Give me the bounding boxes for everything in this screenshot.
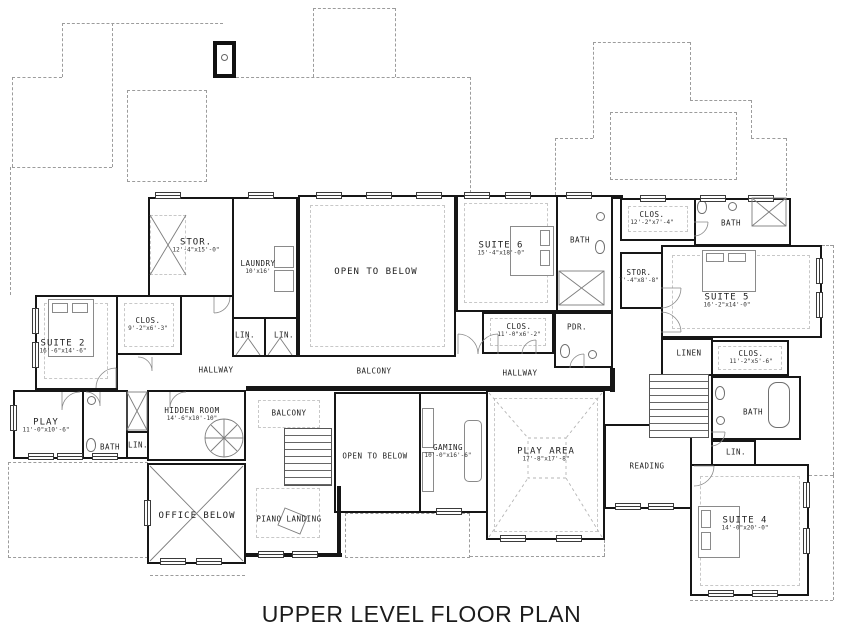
label-clos-suite-2: CLOS. 9'-2"x6'-3" — [128, 317, 168, 333]
label-laundry: LAUNDRY 10'x16' — [240, 260, 275, 276]
label-clos-top-right: CLOS. 12'-2"x7'-4" — [630, 211, 673, 227]
floor-plan-canvas: SUITE 2 16'-6"x14'-6" CLOS. 9'-2"x6'-3" … — [0, 0, 843, 632]
room-dims: 10'-0"x16'-6" — [425, 453, 472, 460]
label-balcony-top: BALCONY — [356, 368, 391, 377]
room-name: BALCONY — [356, 368, 391, 377]
label-bath-right: BATH — [743, 409, 763, 418]
label-suite-2: SUITE 2 16'-6"x14'-6" — [40, 338, 87, 355]
label-suite-5: SUITE 5 16'-2"x14'-0" — [704, 292, 751, 309]
label-stor-right: STOR. 7'-4"x8'-8" — [619, 269, 659, 285]
label-play: PLAY 11'-0"x10'-6" — [23, 417, 70, 434]
room-name: BALCONY — [271, 410, 306, 419]
label-open-to-below-bottom: OPEN TO BELOW — [342, 453, 407, 462]
label-clos-suite-6: CLOS. 11'-0"x6'-2" — [497, 323, 540, 339]
room-dims: 17'-8"x17'-8" — [517, 457, 575, 464]
room-dims: 7'-4"x8'-8" — [619, 278, 659, 285]
label-gaming: GAMING 10'-0"x16'-6" — [425, 444, 472, 460]
room-dims: 11'-0"x6'-2" — [497, 332, 540, 339]
room-name: LIN. — [726, 449, 746, 458]
label-play-area: PLAY AREA 17'-8"x17'-8" — [517, 446, 575, 463]
room-name: OFFICE BELOW — [158, 511, 235, 521]
room-name: LIN. — [235, 332, 255, 341]
label-hallway-right: HALLWAY — [502, 370, 537, 379]
room-dims: 12'-2"x7'-4" — [630, 220, 673, 227]
label-lin-bottom-left: LIN. — [128, 442, 148, 451]
label-lin-left-2: LIN. — [274, 332, 294, 341]
plan-decor-lines — [0, 0, 843, 632]
room-name: HALLWAY — [502, 370, 537, 379]
room-name: OPEN TO BELOW — [334, 267, 417, 277]
room-name: LIN. — [274, 332, 294, 341]
room-name: BATH — [570, 237, 590, 246]
label-linen: LINEN — [676, 350, 701, 359]
room-name: LIN. — [128, 442, 148, 451]
room-dims: 9'-2"x6'-3" — [128, 326, 168, 333]
label-balcony-lower: BALCONY — [271, 410, 306, 419]
room-name: OPEN TO BELOW — [342, 453, 407, 462]
label-hidden-room: HIDDEN ROOM 14'-6"x10'-10" — [164, 407, 219, 423]
label-bath-left: BATH — [100, 444, 120, 453]
label-lin-left-1: LIN. — [235, 332, 255, 341]
room-name: LINEN — [676, 350, 701, 359]
room-name: PIANO LANDING — [256, 516, 321, 525]
label-lin-right: LIN. — [726, 449, 746, 458]
label-office-below: OFFICE BELOW — [158, 511, 235, 521]
label-hallway-left: HALLWAY — [198, 367, 233, 376]
room-dims: 16'-6"x14'-6" — [40, 349, 87, 356]
room-dims: 14'-6"x10'-10" — [164, 416, 219, 423]
room-name: BATH — [100, 444, 120, 453]
label-suite-6: SUITE 6 15'-4"x18'-0" — [478, 240, 525, 257]
room-dims: 16'-2"x14'-0" — [704, 303, 751, 310]
label-stor-left: STOR. 12'-4"x15'-0" — [173, 237, 220, 254]
room-name: BATH — [743, 409, 763, 418]
label-clos-right: CLOS. 11'-2"x5'-6" — [729, 350, 772, 366]
room-dims: 12'-4"x15'-0" — [173, 248, 220, 255]
label-reading: READING — [629, 463, 664, 472]
label-bath-suite-6: BATH — [570, 237, 590, 246]
room-dims: 14'-0"x20'-0" — [722, 526, 769, 533]
label-bath-top-right: BATH — [721, 220, 741, 229]
label-open-to-below-top: OPEN TO BELOW — [334, 267, 417, 277]
room-name: HALLWAY — [198, 367, 233, 376]
label-pdr: PDR. — [567, 324, 587, 333]
room-dims: 11'-0"x10'-6" — [23, 428, 70, 435]
label-piano-landing: PIANO LANDING — [256, 516, 321, 525]
room-name: BATH — [721, 220, 741, 229]
room-dims: 11'-2"x5'-6" — [729, 359, 772, 366]
plan-title: UPPER LEVEL FLOOR PLAN — [0, 601, 843, 628]
room-name: PDR. — [567, 324, 587, 333]
room-dims: 15'-4"x18'-0" — [478, 251, 525, 258]
room-name: READING — [629, 463, 664, 472]
label-suite-4: SUITE 4 14'-0"x20'-0" — [722, 515, 769, 532]
room-dims: 10'x16' — [240, 269, 275, 276]
